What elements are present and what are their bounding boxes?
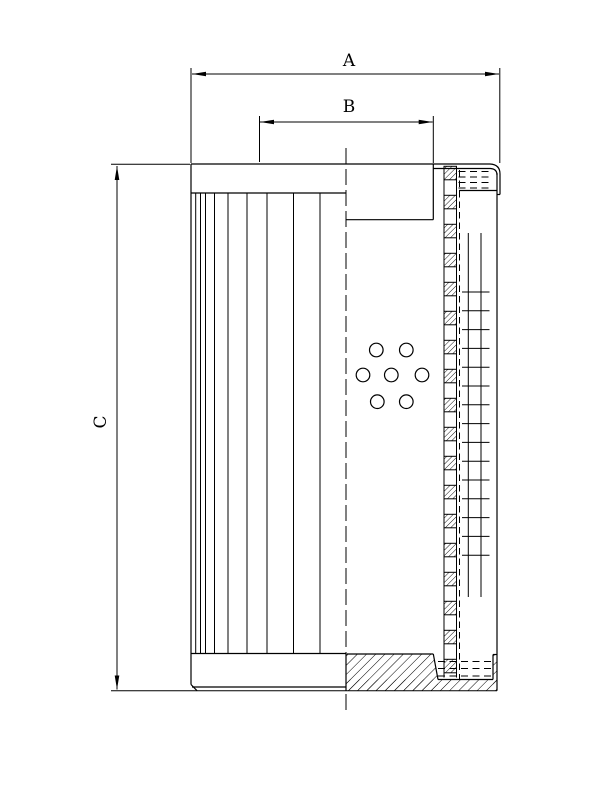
perforation-hole xyxy=(415,368,429,382)
dimension-b-arrow-right xyxy=(419,120,433,125)
dimension-c-arrow-top xyxy=(115,166,120,180)
core-tube-segment xyxy=(444,340,457,354)
dimension-c: C xyxy=(91,164,190,689)
core-tube-segment xyxy=(444,601,457,615)
dimension-a-label: A xyxy=(342,51,356,71)
core-tube-segment xyxy=(444,166,457,180)
bottom-cap-hatch-slab xyxy=(346,680,497,691)
dimension-c-label: C xyxy=(91,415,111,428)
core-tube-segment xyxy=(444,572,457,586)
perforation-hole xyxy=(385,368,399,382)
core-tube-segment xyxy=(444,485,457,499)
perforation-hole xyxy=(356,368,370,382)
filter-element-drawing: A B C xyxy=(0,0,612,792)
core-tube-segment xyxy=(444,456,457,470)
core-tube-segment xyxy=(444,311,457,325)
perforation-hole xyxy=(370,343,384,357)
core-tube-segment xyxy=(444,195,457,209)
core-tube-segment xyxy=(444,427,457,441)
adhesive-top xyxy=(459,172,493,189)
core-tube-segment xyxy=(444,253,457,266)
media-mesh xyxy=(460,170,490,679)
dimension-a-arrow-left xyxy=(192,72,206,77)
perforation-hole xyxy=(371,395,385,409)
core-tube-segment xyxy=(444,282,457,296)
perforation-hole xyxy=(400,395,414,409)
core-tube-segment xyxy=(444,543,457,557)
perforation-hole xyxy=(400,343,414,357)
core-tube-segment xyxy=(444,398,457,412)
pleats xyxy=(196,193,320,654)
core-tube-segment xyxy=(444,224,457,238)
core-tube-segment xyxy=(444,369,457,383)
element-outline xyxy=(111,164,500,691)
core-tube-segment xyxy=(444,630,457,644)
dimension-c-arrow-bottom xyxy=(115,676,120,690)
dimension-b-label: B xyxy=(343,97,356,117)
bottom-cap-section xyxy=(346,654,497,691)
core-tube-segment xyxy=(444,514,457,528)
dimension-b-arrow-left xyxy=(260,120,274,125)
core-tube xyxy=(444,166,457,678)
core-tube-segment xyxy=(444,659,457,673)
perforation-holes xyxy=(356,343,429,408)
drawing-page: A B C xyxy=(0,0,612,792)
dimension-a-arrow-right xyxy=(485,72,499,77)
